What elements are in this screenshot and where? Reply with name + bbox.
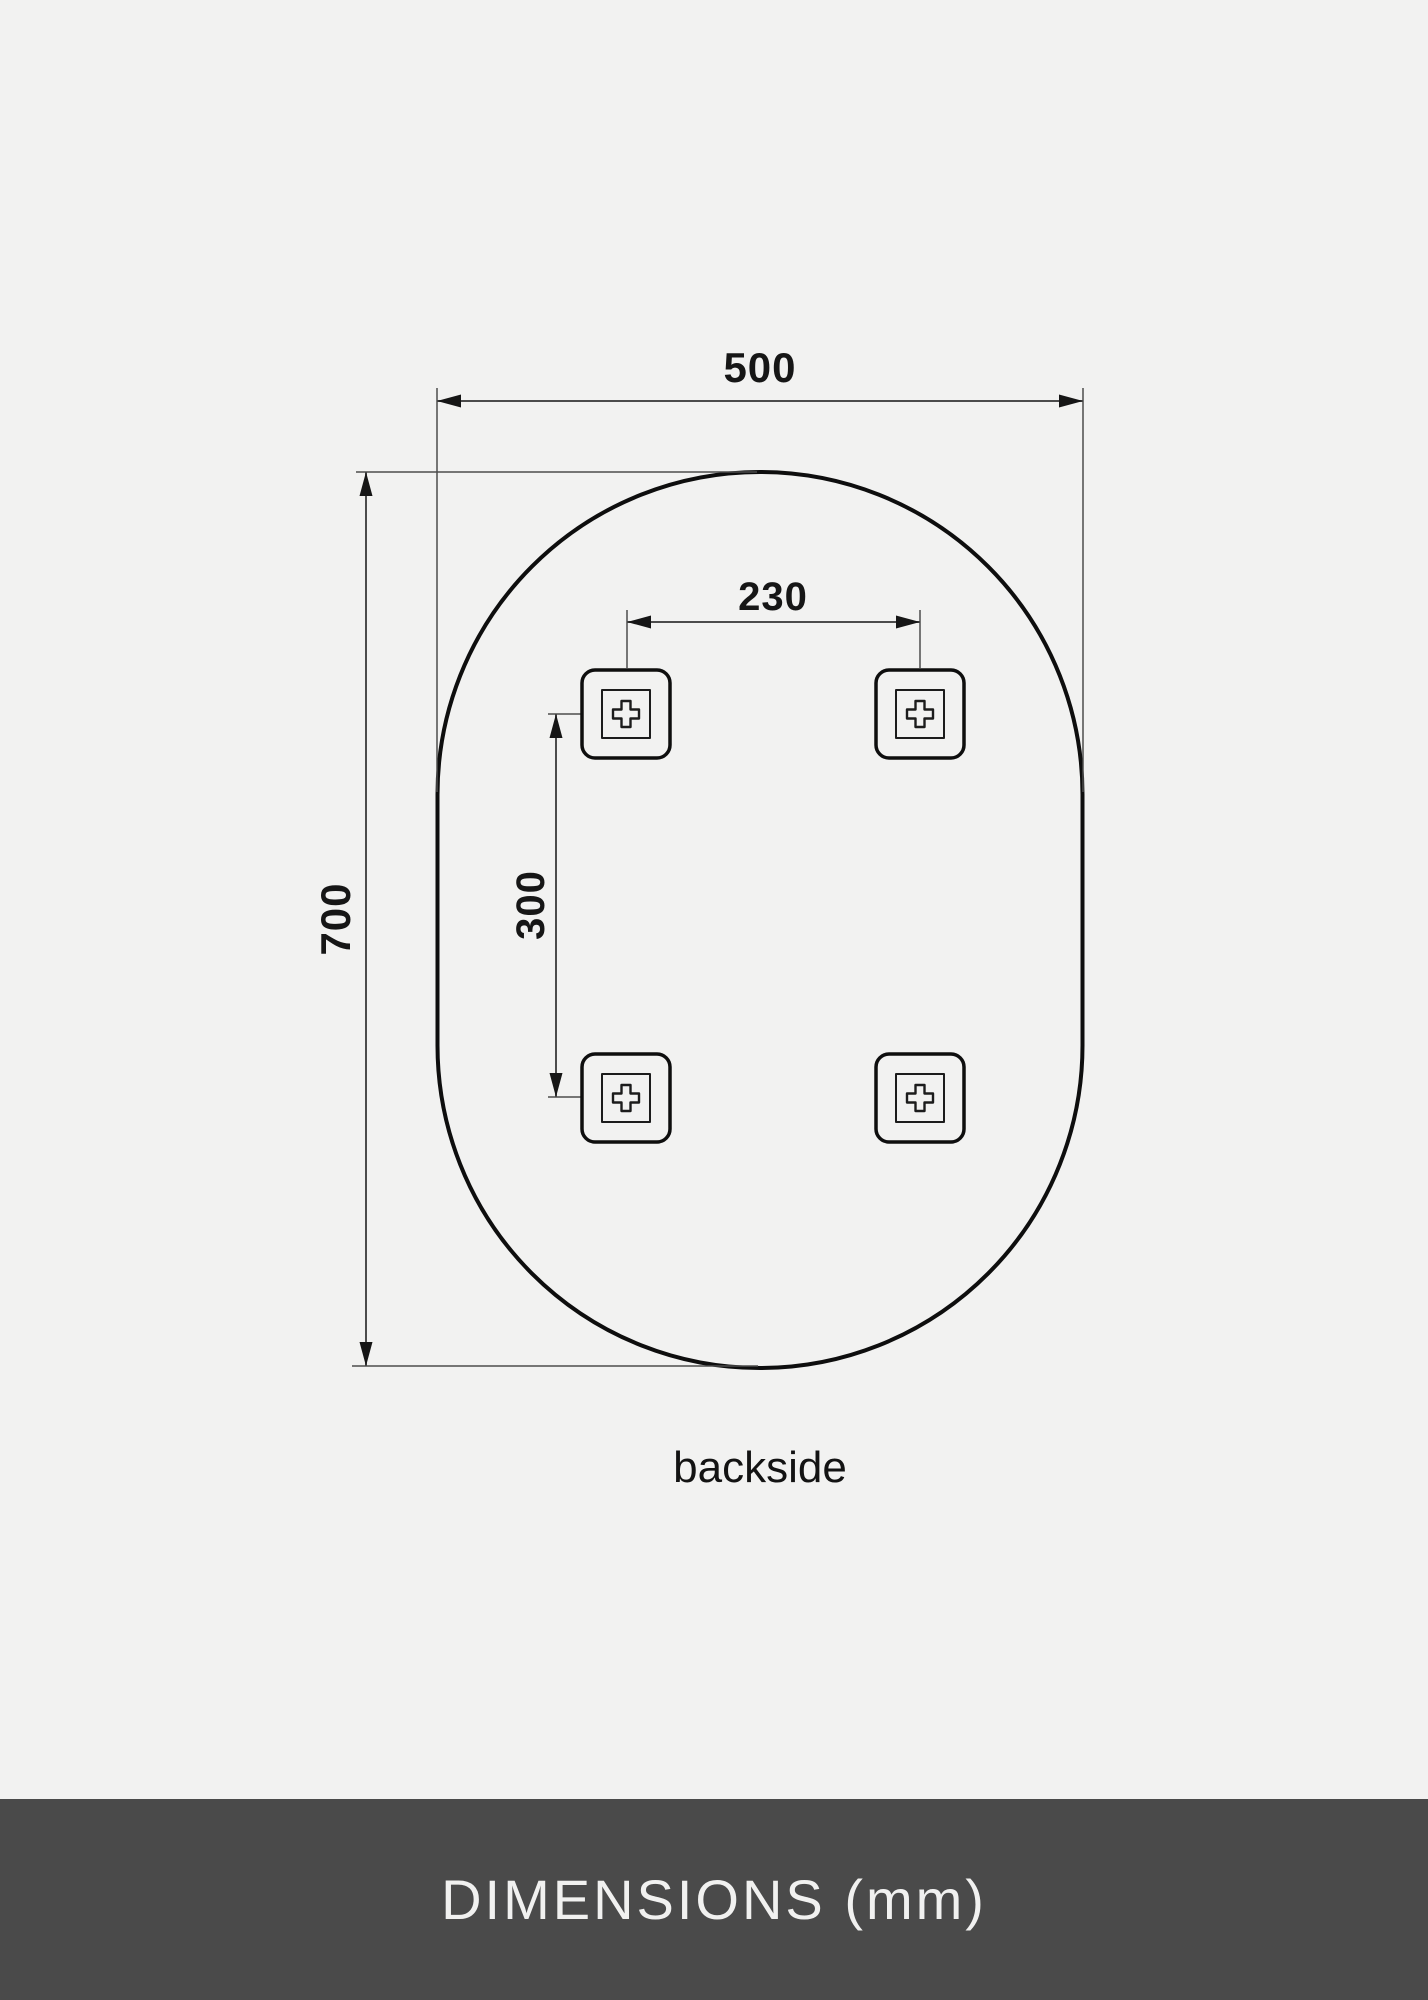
cross-fitting-icon (907, 701, 933, 727)
dimension-arrows (360, 395, 1084, 1367)
dimension-drawing (0, 0, 1428, 1815)
caption-backside: backside (560, 1446, 960, 1490)
dimension-lines (366, 401, 1083, 1366)
cross-fitting-icon (613, 1085, 639, 1111)
footer-title: DIMENSIONS (mm) (441, 1867, 987, 1932)
mounting-bracket-top-left (582, 670, 670, 758)
dim-label-bracket-vertical: 300 (511, 755, 551, 1055)
cross-fitting-icon (613, 701, 639, 727)
mounting-bracket-top-right (876, 670, 964, 758)
dim-label-height: 700 (315, 769, 357, 1069)
footer-bar: DIMENSIONS (mm) (0, 1799, 1428, 2000)
extension-lines (352, 388, 1083, 1366)
mounting-bracket-bottom-right (876, 1054, 964, 1142)
cross-fitting-icon (907, 1085, 933, 1111)
mounting-bracket-bottom-left (582, 1054, 670, 1142)
dim-label-width: 500 (610, 347, 910, 389)
product-dimension-sheet: 500 700 230 300 backside DIMENSIONS (mm) (0, 0, 1428, 2000)
dim-label-bracket-horizontal: 230 (623, 577, 923, 617)
